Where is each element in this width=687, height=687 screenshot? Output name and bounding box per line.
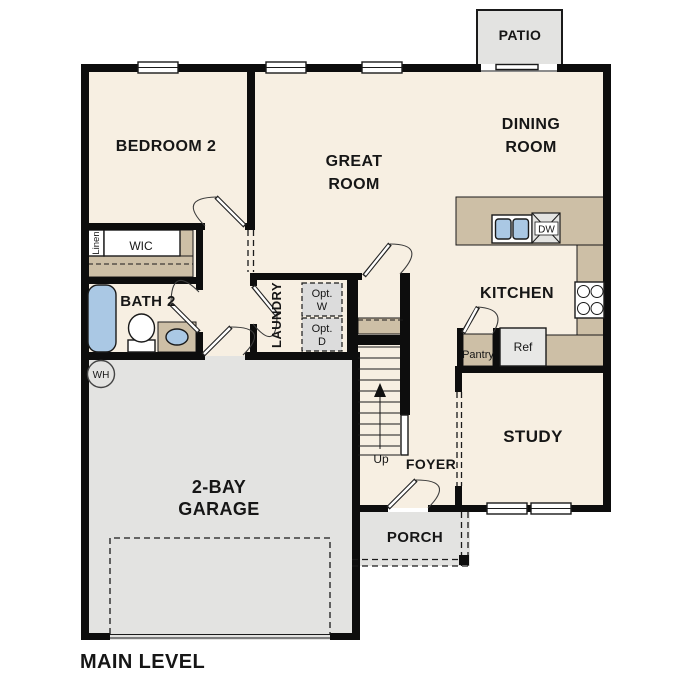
bedroom2-label: BEDROOM 2 — [116, 138, 217, 155]
stair-half-wall — [358, 318, 405, 334]
window — [362, 62, 402, 73]
window — [487, 503, 527, 514]
patio-slider-door — [481, 64, 557, 72]
porch-post — [459, 555, 469, 565]
garage-door-opening — [110, 633, 330, 640]
floor-plan-page: DW Ref WH Opt. W Opt. D — [0, 0, 687, 687]
dining-room-label-2: ROOM — [505, 139, 556, 156]
window — [266, 62, 306, 73]
dishwasher-label: DW — [538, 225, 555, 236]
stairs-up-label: Up — [373, 452, 389, 466]
dishwasher: DW — [532, 213, 560, 243]
kitchen-sink — [492, 215, 532, 243]
foyer-label: FOYER — [406, 456, 456, 472]
great-room-label-1: GREAT — [326, 153, 383, 170]
stove — [575, 282, 604, 318]
bathroom-sink — [166, 329, 188, 345]
study-label: STUDY — [503, 427, 563, 446]
dining-room-label-1: DINING — [502, 116, 560, 133]
refrigerator-label: Ref — [514, 340, 533, 354]
optional-dryer: Opt. D — [302, 318, 342, 351]
kitchen-bottom-counter — [546, 335, 604, 366]
opt-washer-label-2: W — [317, 301, 328, 313]
refrigerator: Ref — [500, 328, 546, 366]
opt-dryer-label-1: Opt. — [312, 323, 333, 335]
water-heater: WH — [88, 361, 115, 388]
toilet — [128, 314, 155, 352]
bath2-label: BATH 2 — [120, 293, 175, 310]
plan-title: MAIN LEVEL — [80, 651, 205, 673]
porch-label: PORCH — [387, 529, 443, 546]
floor-plan-drawing: DW Ref WH Opt. W Opt. D — [0, 0, 687, 687]
garage-label-2: GARAGE — [178, 499, 259, 519]
water-heater-label: WH — [93, 370, 110, 381]
window — [531, 503, 571, 514]
opt-washer-label-1: Opt. — [312, 288, 333, 300]
laundry-label: LAUNDRY — [269, 282, 284, 348]
opt-dryer-label-2: D — [318, 336, 326, 348]
wic-label: WIC — [129, 239, 153, 253]
window — [138, 62, 178, 73]
kitchen-label: KITCHEN — [480, 285, 554, 302]
garage-label-1: 2-BAY — [192, 477, 246, 497]
optional-washer: Opt. W — [302, 283, 342, 316]
great-room-label-2: ROOM — [328, 176, 379, 193]
patio-label: PATIO — [499, 27, 542, 43]
bathtub — [88, 285, 116, 352]
stair-handrail — [401, 415, 408, 455]
pantry-label: Pantry — [462, 349, 494, 361]
wic-shelf-bottom — [85, 256, 193, 277]
linen-label: Linen — [91, 231, 102, 254]
